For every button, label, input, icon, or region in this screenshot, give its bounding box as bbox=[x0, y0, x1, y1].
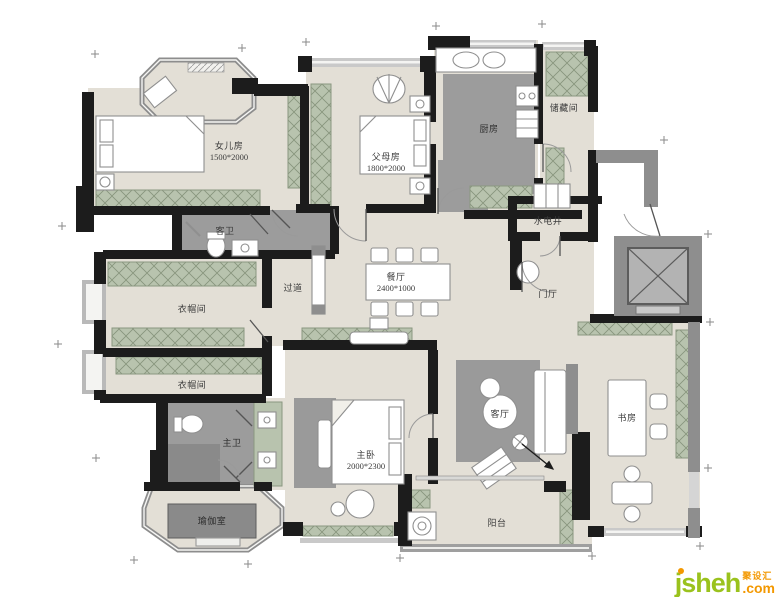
logo-brand-text: jsheh bbox=[675, 572, 741, 595]
tv-wall bbox=[566, 364, 578, 434]
storage-shelf bbox=[546, 52, 588, 96]
room-label-yoga: 瑜伽室 bbox=[198, 515, 227, 527]
room-label-living: 客厅 bbox=[490, 408, 509, 420]
floorplan-canvas: 女儿房 1500*2000 客卫 父母房 1800*2000 厨房 储藏间 水电… bbox=[0, 0, 780, 597]
room-label-dining: 餐厅 2400*1000 bbox=[377, 271, 415, 295]
parents-wardrobe bbox=[311, 84, 331, 208]
logo-right-column: 聚设汇 .com bbox=[742, 569, 775, 595]
fridge bbox=[516, 110, 538, 138]
jsheh-logo: jsheh 聚设汇 .com bbox=[675, 569, 775, 595]
room-label-cloak-lower: 衣帽间 bbox=[178, 379, 207, 391]
sofa bbox=[534, 370, 566, 454]
bedroom-chair bbox=[346, 490, 374, 518]
sliding-door bbox=[416, 476, 544, 480]
master-toilet bbox=[181, 415, 203, 433]
room-label-foyer: 门厅 bbox=[538, 288, 557, 300]
room-label-corridor: 过道 bbox=[283, 282, 302, 294]
logo-tld-text: .com bbox=[742, 582, 775, 595]
room-label-daughter: 女儿房 1500*2000 bbox=[210, 140, 248, 164]
bench bbox=[318, 420, 331, 468]
room-label-balcony: 阳台 bbox=[487, 517, 506, 529]
cloak-upper-wardrobe bbox=[108, 262, 256, 286]
room-label-kitchen: 厨房 bbox=[479, 123, 498, 135]
floorplan-drawing bbox=[0, 0, 780, 597]
elevator bbox=[614, 236, 702, 316]
room-label-storage: 储藏间 bbox=[550, 102, 579, 114]
room-label-guest-bath: 客卫 bbox=[215, 225, 234, 237]
room-label-master-bath: 主卫 bbox=[222, 437, 241, 449]
hall-cabinet bbox=[312, 246, 325, 314]
room-label-cloak-upper: 衣帽间 bbox=[178, 303, 207, 315]
room-label-study: 书房 bbox=[617, 412, 636, 424]
cloak-lower-wardrobe bbox=[116, 357, 262, 374]
room-label-master: 主卧 2000*2300 bbox=[347, 449, 385, 473]
tea-table bbox=[612, 482, 652, 504]
study-cabinet bbox=[578, 322, 672, 335]
room-label-utility-shaft: 水电井 bbox=[534, 215, 563, 227]
room-label-parents: 父母房 1800*2000 bbox=[367, 151, 405, 175]
